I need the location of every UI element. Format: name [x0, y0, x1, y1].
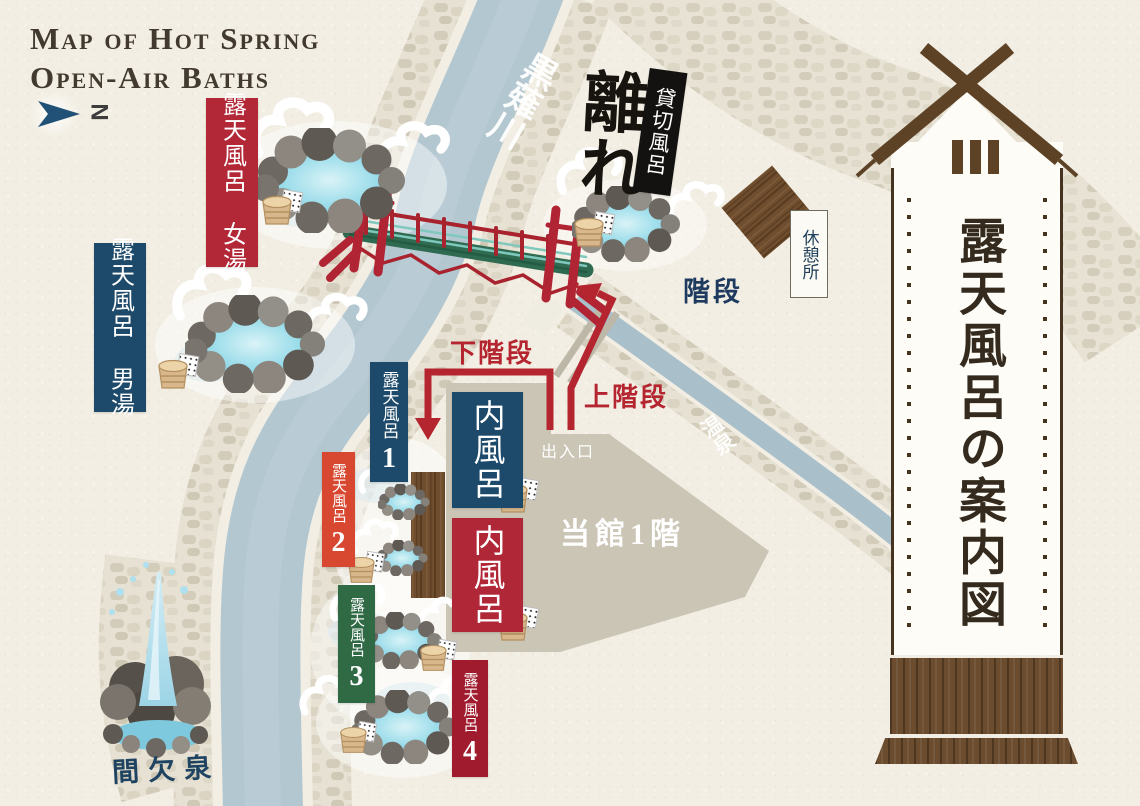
up-stairs-label: 上階段	[584, 377, 668, 414]
women-bath-label: 露天風呂 女湯	[206, 98, 258, 267]
down-stairs-label: 下階段	[450, 333, 534, 370]
outdoor-bath-2-label: 露天風呂 2	[322, 452, 355, 567]
outdoor-bath-3-label: 露天風呂 3	[338, 585, 375, 703]
building-floor-label: 当館1階	[560, 509, 685, 553]
stairs-label: 階段	[683, 270, 743, 309]
sign-foundation	[875, 738, 1078, 764]
rest-area-label: 休憩所	[790, 210, 828, 298]
entrance-label: 出入口	[541, 438, 595, 462]
map-title-line1: Map of Hot Spring	[30, 20, 320, 59]
men-bath-label: 露天風呂 男湯	[94, 243, 146, 412]
outdoor-bath-4-label: 露天風呂 4	[452, 660, 488, 777]
compass: N	[28, 88, 138, 144]
indoor-bath-blue-label: 内風呂	[452, 392, 523, 508]
north-arrow-icon	[36, 98, 82, 130]
sign-title: 露天風呂の案内図	[891, 208, 1063, 638]
geyser-label: 間欠泉	[111, 745, 221, 790]
map-title: Map of Hot Spring Open-Air Baths	[30, 20, 320, 98]
sign-post-base	[890, 658, 1063, 734]
hot-spring-map: Map of Hot Spring Open-Air Baths N 露天風呂 …	[0, 0, 1140, 806]
indoor-bath-red-label: 内風呂	[452, 518, 523, 632]
hanare-label: 離れ	[569, 66, 641, 254]
north-label: N	[85, 103, 113, 120]
outdoor-bath-1-label: 露天風呂 1	[370, 362, 408, 482]
guide-sign: 露天風呂の案内図	[855, 30, 1095, 775]
